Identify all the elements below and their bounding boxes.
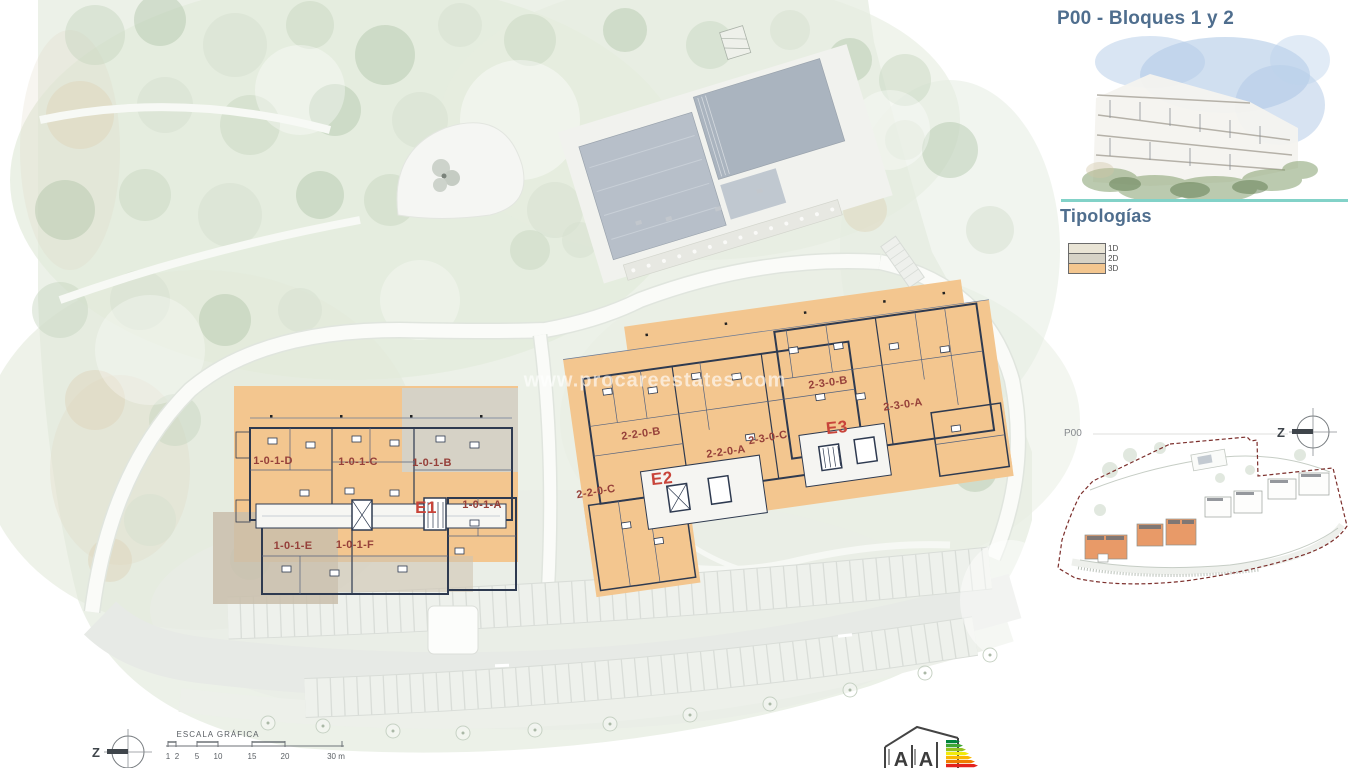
keyplan: P00 Z xyxy=(1058,408,1347,584)
building-label-e1: E1 xyxy=(415,498,437,518)
scale-tick: 15 xyxy=(248,752,257,761)
north-arrow: Z xyxy=(92,729,152,768)
north-letter: Z xyxy=(92,745,100,760)
unit-label-1-0-1-b: 1-0-1-B xyxy=(412,457,451,469)
building-e1 xyxy=(213,386,518,604)
sheet: P00 Z Z ESCALA GRÁFICA 1 2 5 10 15 20 30… xyxy=(0,0,1366,768)
legend-row-3d: 3D xyxy=(1068,263,1118,274)
scale-tick: 30 m xyxy=(327,752,345,761)
building-label-e2: E2 xyxy=(650,468,674,490)
typologies-legend: 1D 2D 3D xyxy=(1068,244,1118,274)
panel-divider xyxy=(1061,199,1348,202)
unit-label-1-0-1-c: 1-0-1-C xyxy=(338,456,377,468)
scale-tick: 20 xyxy=(281,752,290,761)
unit-label-1-0-1-a: 1-0-1-A xyxy=(462,499,501,511)
energy-letter-consumption: A xyxy=(894,749,908,768)
energy-arrow-scale xyxy=(946,740,978,767)
keyplan-floor-label: P00 xyxy=(1064,428,1082,439)
energy-rating-icon: A A xyxy=(885,727,978,768)
unit-label-1-0-1-f: 1-0-1-F xyxy=(336,539,374,551)
unit-label-1-0-1-d: 1-0-1-D xyxy=(253,455,292,467)
scale-tick: 1 xyxy=(166,752,171,761)
typologies-heading: Tipologías xyxy=(1060,206,1152,227)
building-label-e3: E3 xyxy=(825,417,849,439)
scale-bar-title: ESCALA GRÁFICA xyxy=(177,730,260,739)
building-render-image xyxy=(1082,35,1330,202)
watermark: www.procareestates.com xyxy=(524,370,786,393)
unit-label-1-0-1-e: 1-0-1-E xyxy=(274,540,313,552)
keyplan-north-letter: Z xyxy=(1277,425,1285,440)
legend-code-3d: 3D xyxy=(1108,263,1118,274)
legend-swatch-3d xyxy=(1068,263,1106,274)
scale-tick: 5 xyxy=(195,752,200,761)
energy-letter-emissions: A xyxy=(919,749,933,768)
scale-tick: 2 xyxy=(175,752,180,761)
page-title: P00 - Bloques 1 y 2 xyxy=(1057,8,1234,30)
scale-tick: 10 xyxy=(214,752,223,761)
keyplan-north-arrow: Z xyxy=(1277,408,1337,456)
